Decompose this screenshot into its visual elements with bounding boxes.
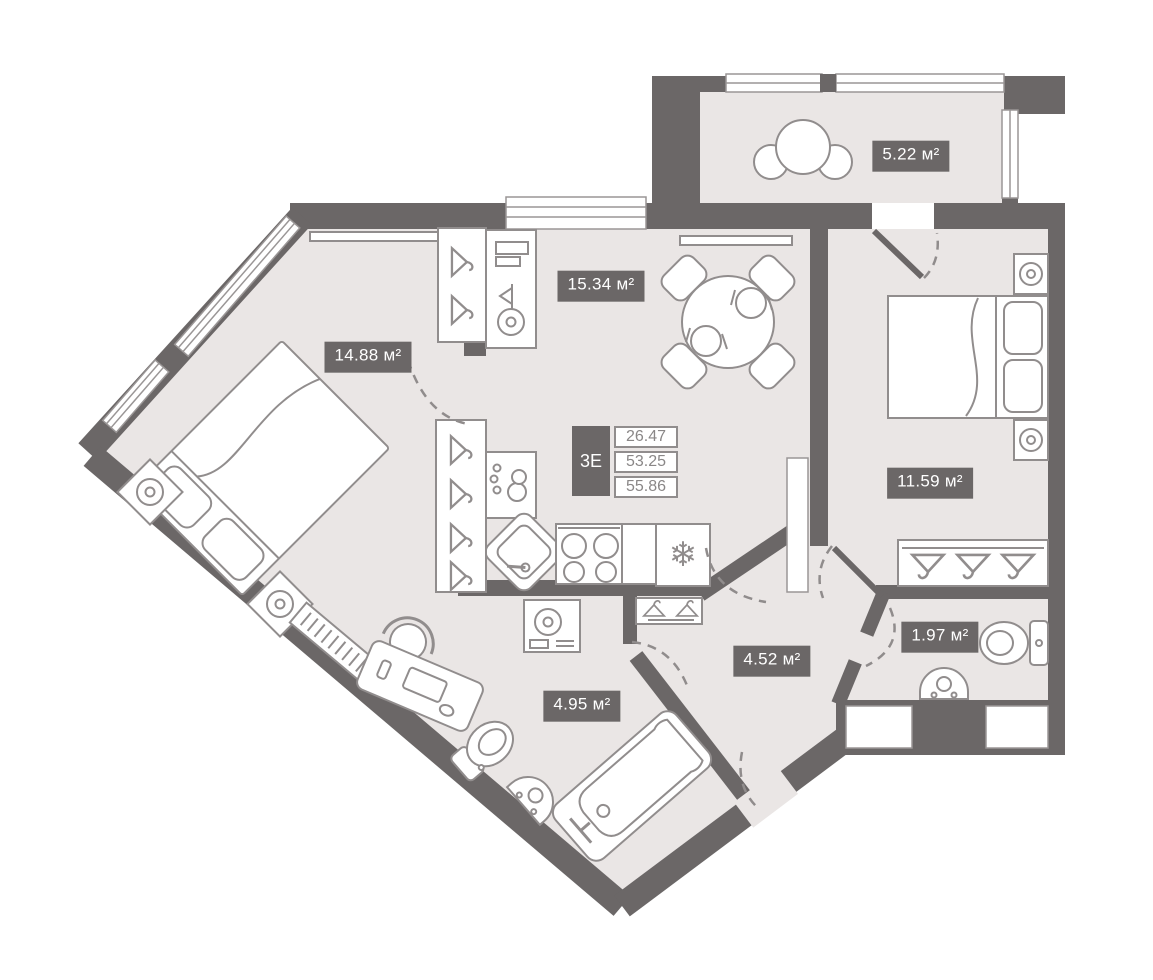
area-label-balcony: 5.22 м² <box>872 141 949 172</box>
area-label-bathroom: 4.95 м² <box>543 691 620 722</box>
stove-icon <box>556 524 622 584</box>
kitchen-cabinet-icon <box>486 452 536 518</box>
area-label-bedroom-right: 11.59 м² <box>887 468 973 499</box>
svg-text:❄: ❄ <box>669 536 698 574</box>
spec-value-total-area: 55.86 <box>614 476 678 498</box>
coat-rack-icon <box>636 598 702 624</box>
floor-plan-page: ❄ <box>0 0 1153 980</box>
cabinet-washer-icon <box>486 230 536 348</box>
area-label-hallway: 4.52 м² <box>733 646 810 677</box>
toilet-icon <box>980 621 1048 665</box>
area-label-kitchen-living: 15.34 м² <box>557 271 644 302</box>
fridge-icon: ❄ <box>656 524 710 586</box>
washing-machine-icon <box>524 600 580 652</box>
area-label-bedroom-left: 14.88 м² <box>324 342 411 373</box>
shelf-icon <box>680 236 792 245</box>
unit-spec-table: 3Е 26.47 53.25 55.86 <box>572 426 678 498</box>
area-label-wc: 1.97 м² <box>901 622 978 653</box>
bed-right-icon <box>888 296 1048 418</box>
wardrobe-icon <box>898 540 1048 586</box>
spec-value-area: 53.25 <box>614 451 678 473</box>
spec-value-living-area: 26.47 <box>614 426 678 448</box>
counter-icon <box>622 524 656 584</box>
unit-type-label: 3Е <box>572 426 610 496</box>
